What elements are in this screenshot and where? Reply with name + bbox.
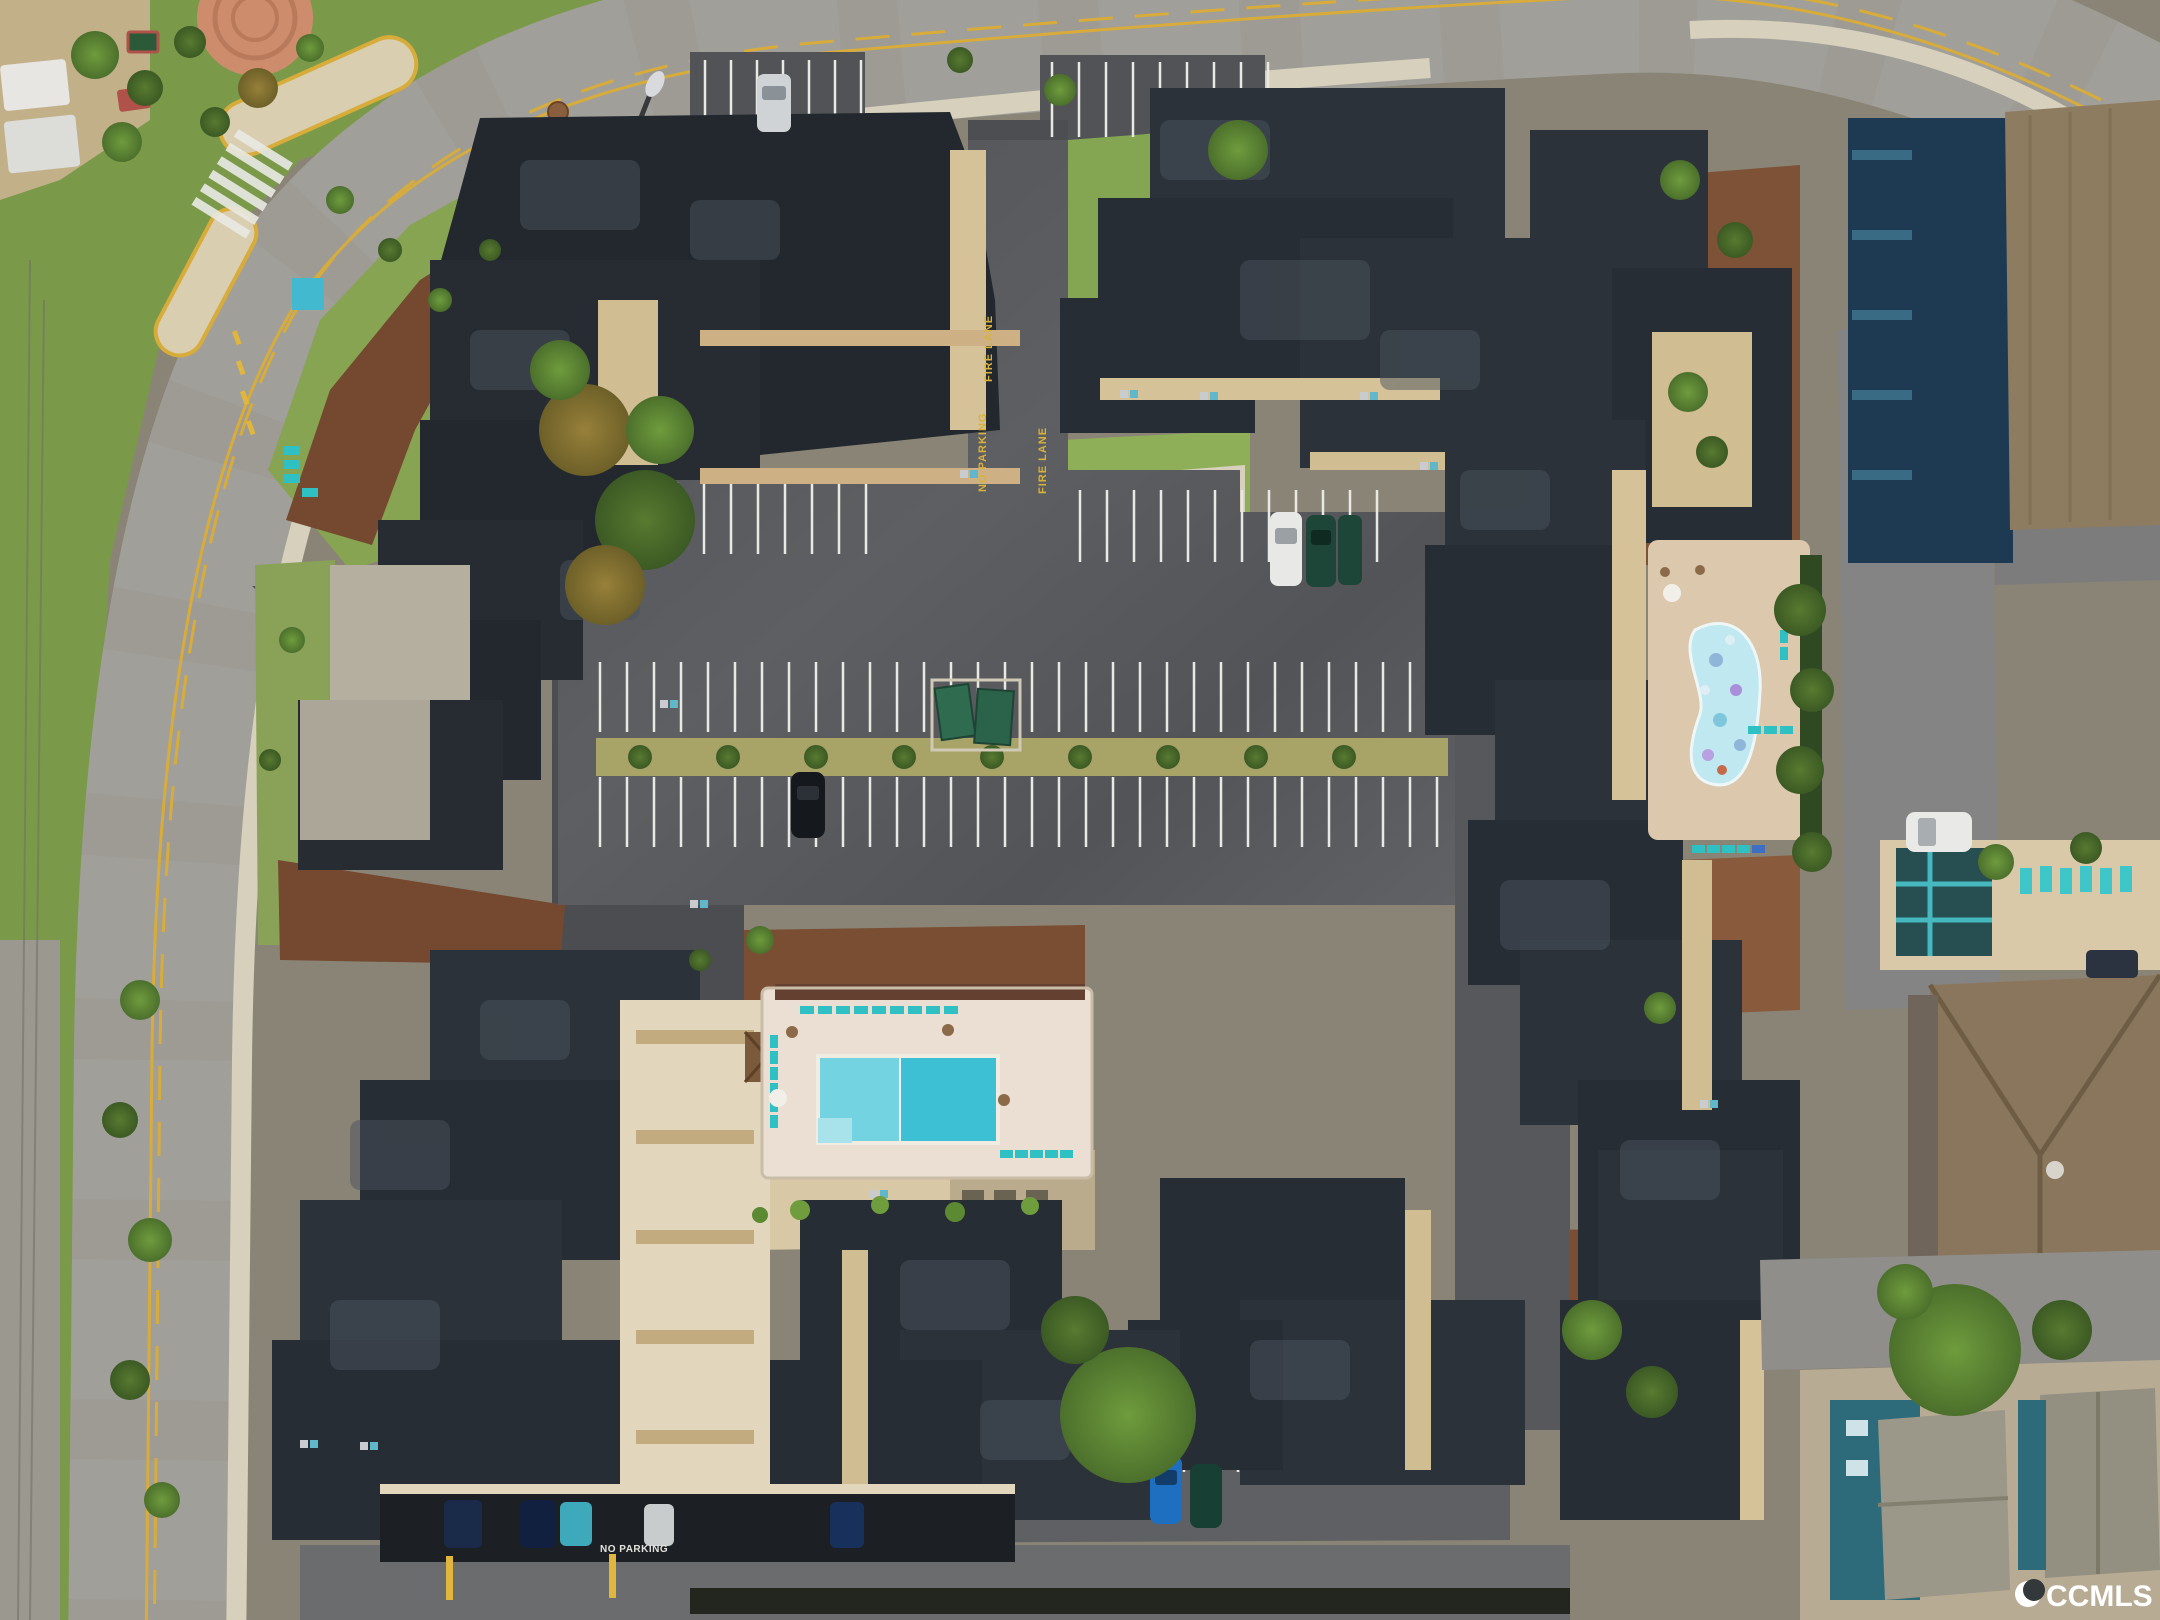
tree <box>947 47 973 73</box>
ac-unit <box>700 900 708 908</box>
ac-unit <box>670 700 678 708</box>
tree <box>127 70 163 106</box>
car-white-upper-row <box>1270 512 1302 586</box>
lounger <box>926 1006 940 1014</box>
median-shrub <box>892 745 916 769</box>
tree <box>1776 746 1824 794</box>
dumpster-1 <box>935 684 976 740</box>
navy-condo <box>1848 118 2013 563</box>
white-trailer-2 <box>3 114 80 173</box>
lounger <box>1000 1150 1013 1158</box>
lounger <box>1707 845 1720 853</box>
ac-unit <box>660 700 668 708</box>
tree <box>1877 1264 1933 1320</box>
tree <box>1208 120 1268 180</box>
suv-white-right-drive <box>1906 812 1972 852</box>
lounger <box>908 1006 922 1014</box>
tree <box>1626 1366 1678 1418</box>
lounger <box>770 1115 778 1128</box>
brown-shingle-roof <box>2005 100 2160 530</box>
tree <box>144 1482 180 1518</box>
tree <box>279 627 305 653</box>
tree <box>102 122 142 162</box>
no-parking-text-yellow: NO PARKING <box>977 413 989 492</box>
pool-steps <box>818 1118 852 1143</box>
walkway-east-face <box>950 150 986 430</box>
roof-wear-patch <box>1240 260 1370 340</box>
tree <box>2032 1300 2092 1360</box>
tree <box>71 31 119 79</box>
beach-house-1 <box>1830 1400 2010 1600</box>
yellow-bollard-1 <box>446 1556 453 1600</box>
tree <box>1792 832 1832 872</box>
umbrella <box>769 1089 787 1107</box>
median-shrub <box>1068 745 1092 769</box>
lounger <box>1780 726 1793 734</box>
ac-unit <box>1700 1100 1708 1108</box>
median-shrub <box>804 745 828 769</box>
beach-house-2 <box>2018 1388 2160 1578</box>
lounger <box>1752 845 1765 853</box>
roof-vent <box>2046 1161 2064 1179</box>
car-silver-toplot <box>757 74 791 132</box>
lounger <box>872 1006 886 1014</box>
patio-chair <box>1695 565 1705 575</box>
patio-table <box>942 1024 954 1036</box>
tree <box>1044 74 1076 106</box>
roof-wear-patch <box>520 160 640 230</box>
roof-wear-patch <box>1620 1140 1720 1200</box>
ac-unit <box>1130 390 1138 398</box>
lounger <box>1045 1150 1058 1158</box>
tree <box>1717 222 1753 258</box>
ac-unit <box>310 1440 318 1448</box>
tree <box>428 288 452 312</box>
tree <box>1978 844 2014 880</box>
fire-lane-text-2: FIRE LANE <box>1037 427 1049 494</box>
neighbor-lap-pool <box>1896 848 1992 956</box>
fire-lane-text-1: FIRE LANE <box>983 315 995 382</box>
tree <box>1041 1296 1109 1364</box>
kidney-pool <box>1690 624 1760 785</box>
no-parking-text-white: NO PARKING <box>600 1544 668 1555</box>
tree <box>128 1218 172 1262</box>
ne-courtyard-walk <box>1652 332 1752 507</box>
tree <box>378 238 402 262</box>
ac-unit <box>1370 392 1378 400</box>
ac-unit <box>1430 462 1438 470</box>
lounger <box>836 1006 850 1014</box>
lounger <box>818 1006 832 1014</box>
carport-edge <box>380 1484 1015 1494</box>
watermark-text: CCMLS <box>2046 1580 2153 1613</box>
deck-hedge <box>775 984 1085 1000</box>
ac-unit <box>370 1442 378 1450</box>
lounger <box>1722 845 1735 853</box>
median-shrub <box>1156 745 1180 769</box>
walkway-east-face <box>1682 860 1712 1110</box>
lounger <box>770 1067 778 1080</box>
median-shrub <box>1332 745 1356 769</box>
tree <box>1790 668 1834 712</box>
lounger <box>1737 845 1750 853</box>
patio-chair <box>1660 567 1670 577</box>
roof-wear-patch <box>330 1300 440 1370</box>
tree <box>326 186 354 214</box>
aerial-scene: FIRE LANE NO PARKING FIRE LANE NO PARKIN… <box>0 0 2160 1620</box>
tree <box>102 1102 138 1138</box>
patio-table <box>998 1094 1010 1106</box>
ac-unit <box>300 1440 308 1448</box>
kiddie-pool <box>292 278 324 310</box>
walkway-east-face <box>1612 470 1646 800</box>
lounger <box>890 1006 904 1014</box>
main-pool-area <box>762 984 1092 1178</box>
car-black-middle-row <box>791 772 825 838</box>
roof-wear-patch <box>980 1400 1070 1460</box>
median-shrub <box>628 745 652 769</box>
dumpster-2 <box>974 689 1014 745</box>
lounger <box>770 1035 778 1048</box>
lounger <box>854 1006 868 1014</box>
tree <box>238 68 278 108</box>
car-green-upper-row-1 <box>1306 515 1336 587</box>
lounger <box>800 1006 814 1014</box>
ac-unit <box>690 900 698 908</box>
courtyard-shrub <box>1668 372 1708 412</box>
median-shrub <box>1244 745 1268 769</box>
ac-unit <box>1710 1100 1718 1108</box>
roof-wear-patch <box>350 1120 450 1190</box>
tree <box>120 980 160 1020</box>
lounger <box>1030 1150 1043 1158</box>
car-green-bottom-lot <box>1190 1464 1222 1528</box>
ac-unit <box>1360 392 1368 400</box>
lounger <box>1692 845 1705 853</box>
walkway-east-face <box>1740 1320 1764 1520</box>
yellow-bollard-2 <box>609 1554 616 1598</box>
left-concrete-strip <box>0 940 60 1620</box>
boat-trailer <box>2086 950 2138 978</box>
median-shrub <box>716 745 740 769</box>
ac-unit <box>360 1442 368 1450</box>
tree <box>1060 1347 1196 1483</box>
tree <box>1660 160 1700 200</box>
tree <box>1562 1300 1622 1360</box>
tree <box>110 1360 150 1400</box>
lounger <box>1748 726 1761 734</box>
lounger <box>1015 1150 1028 1158</box>
lounger <box>1764 726 1777 734</box>
umbrella <box>1663 584 1681 602</box>
walkway <box>1405 1210 1431 1470</box>
tree <box>296 34 324 62</box>
ac-unit <box>960 470 968 478</box>
aerial-photo: FIRE LANE NO PARKING FIRE LANE NO PARKIN… <box>0 0 2160 1620</box>
courtyard-shrub <box>1696 436 1728 468</box>
lounger <box>1060 1150 1073 1158</box>
tree <box>259 749 281 771</box>
tree <box>1644 992 1676 1024</box>
tree <box>565 545 645 625</box>
lounger <box>770 1051 778 1064</box>
tree <box>746 926 774 954</box>
entrance-sign <box>128 32 158 52</box>
tree <box>200 107 230 137</box>
lounger <box>1780 647 1788 660</box>
ac-unit <box>1420 462 1428 470</box>
car-green-upper-row-2 <box>1338 515 1362 585</box>
roof-wear-patch <box>1250 1340 1350 1400</box>
tree <box>1774 584 1826 636</box>
tree <box>689 949 711 971</box>
lounger <box>944 1006 958 1014</box>
ac-unit <box>1200 392 1208 400</box>
boardwalk-bridge-1 <box>700 330 1020 346</box>
tree <box>174 26 206 58</box>
ac-unit <box>1120 390 1128 398</box>
roof-wear-patch <box>480 1000 570 1060</box>
roof-wear-patch <box>1380 330 1480 390</box>
ac-unit <box>1210 392 1218 400</box>
roof-wear-patch <box>690 200 780 260</box>
tree <box>2070 832 2102 864</box>
tree <box>530 340 590 400</box>
roof-wear-patch <box>1460 470 1550 530</box>
white-trailer-1 <box>0 59 70 112</box>
tree <box>626 396 694 464</box>
patio-table <box>786 1026 798 1038</box>
roof-wear-patch <box>1500 880 1610 950</box>
bottom-fence-row <box>690 1588 1570 1614</box>
tree <box>479 239 501 261</box>
roof-wear-patch <box>900 1260 1010 1330</box>
